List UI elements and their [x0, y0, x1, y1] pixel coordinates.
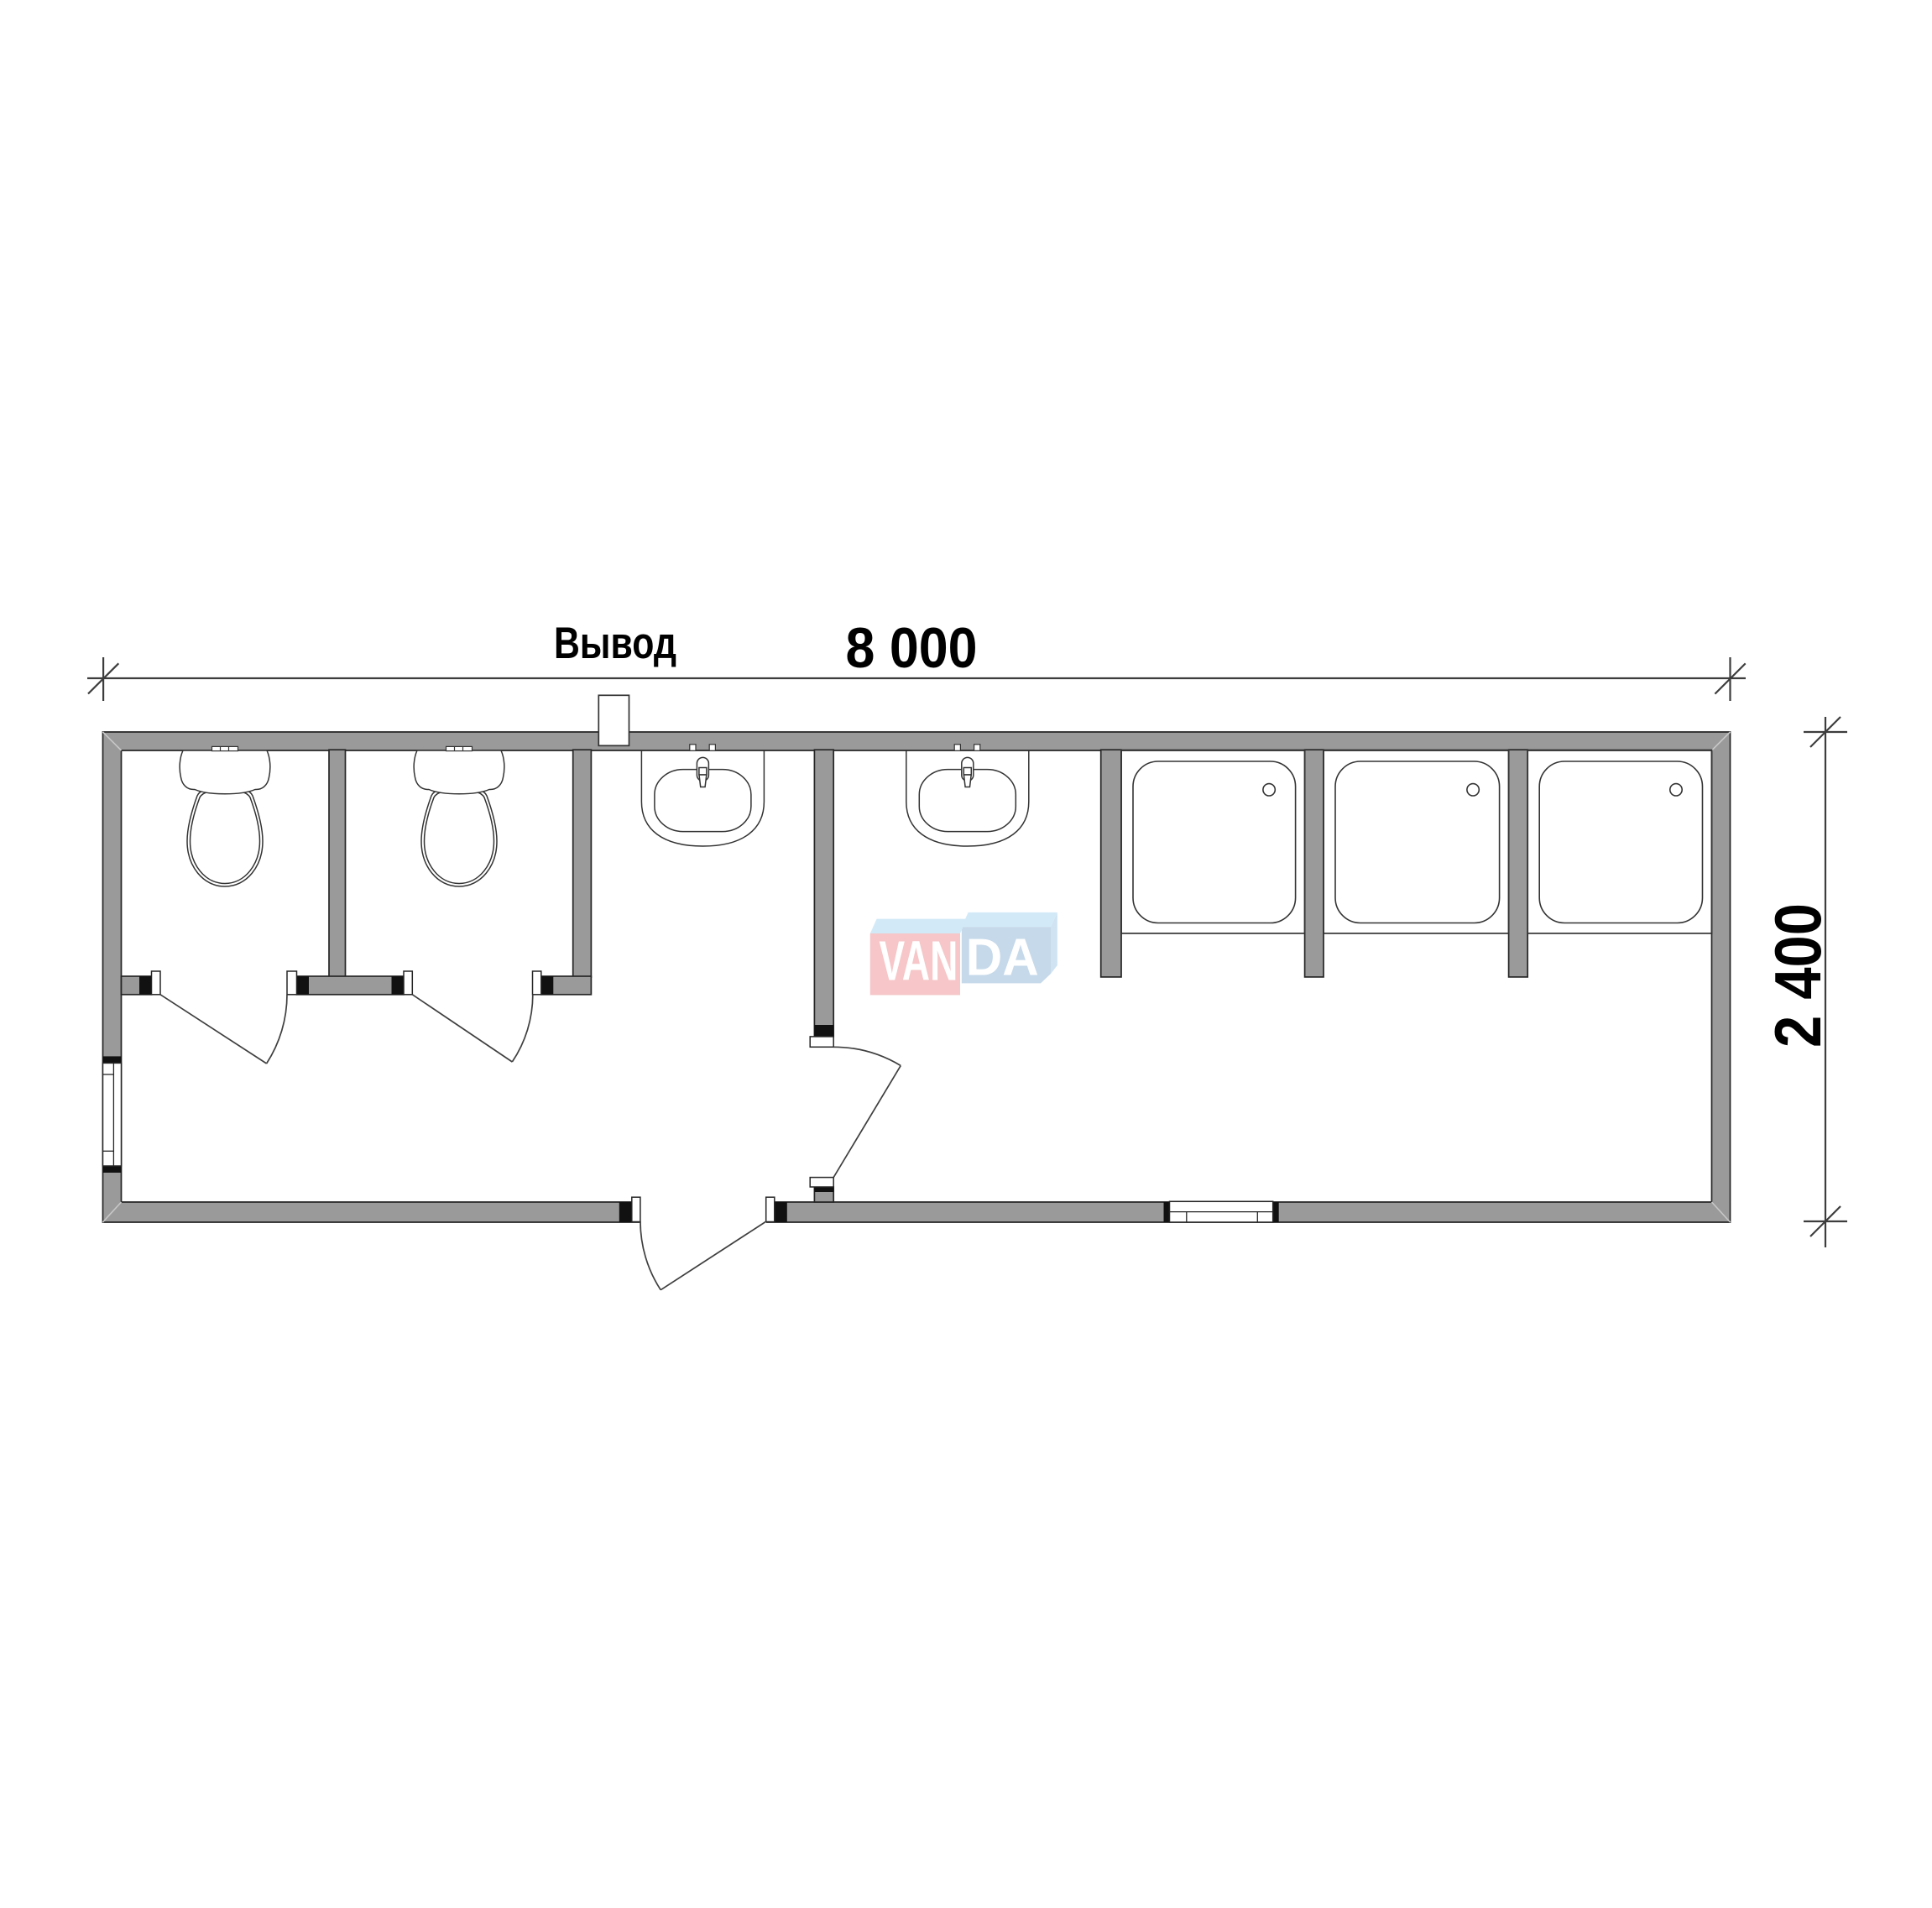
svg-text:Вывод: Вывод	[554, 619, 676, 668]
svg-text:8 000: 8 000	[846, 616, 978, 680]
svg-text:2 400: 2 400	[1761, 903, 1835, 1048]
svg-text:VAN: VAN	[879, 930, 958, 993]
svg-text:DA: DA	[966, 929, 1039, 987]
